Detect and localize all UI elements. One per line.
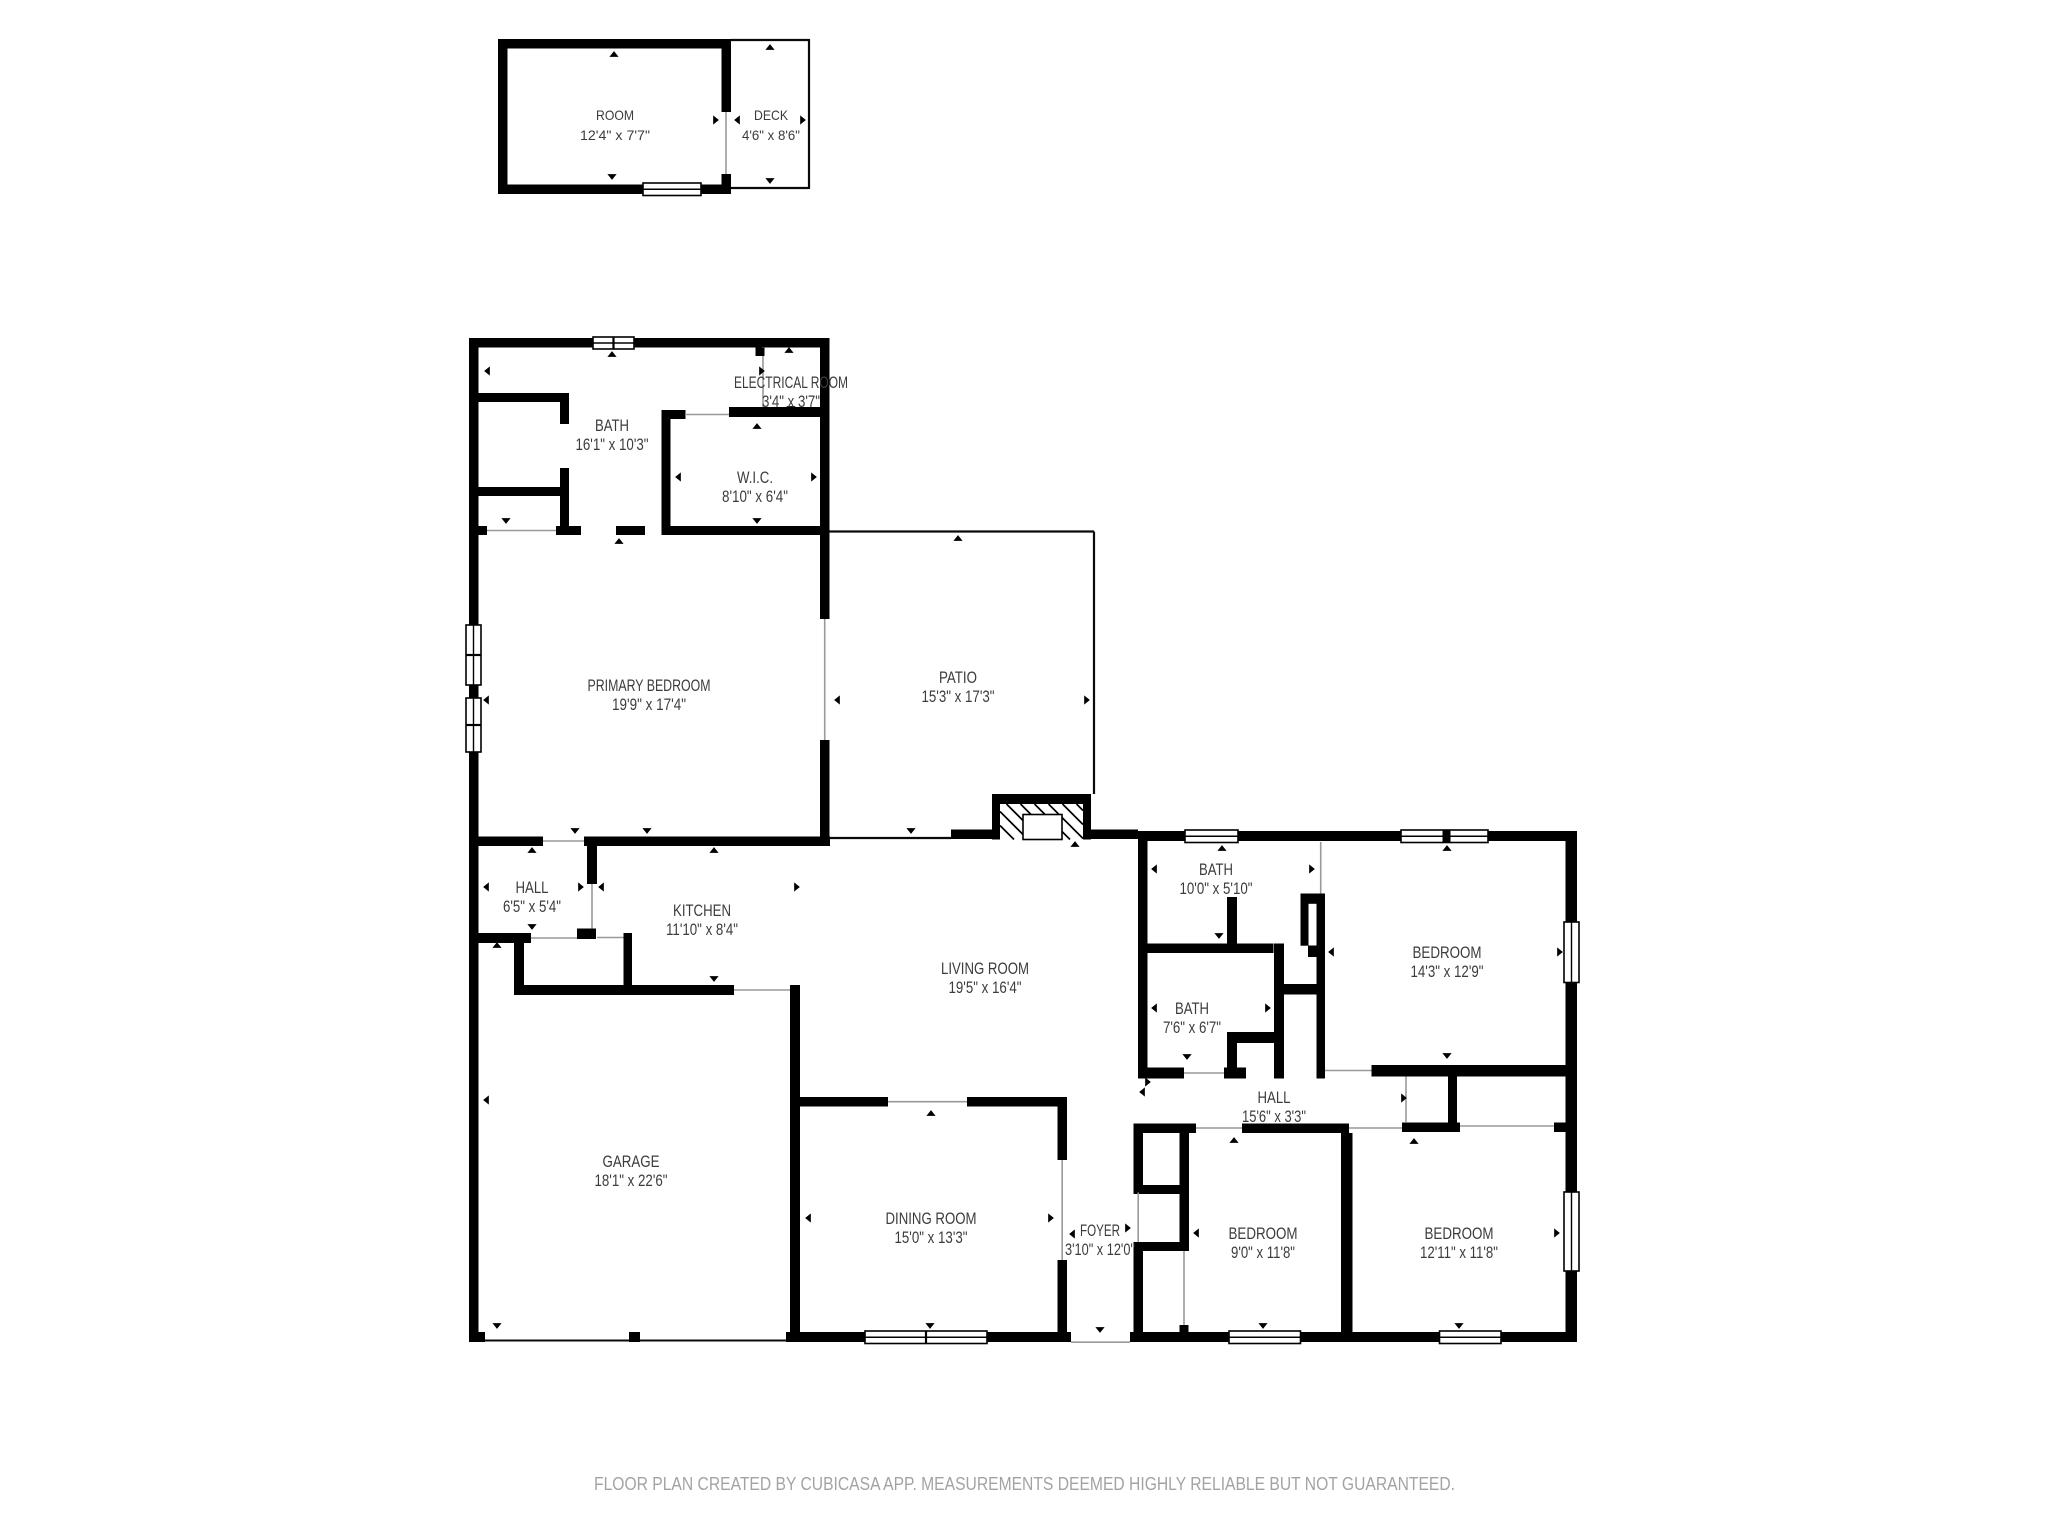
svg-text:BATH: BATH xyxy=(1175,999,1209,1018)
svg-text:DECK: DECK xyxy=(754,107,789,123)
svg-text:15'3" x 17'3": 15'3" x 17'3" xyxy=(922,687,995,706)
svg-text:BATH: BATH xyxy=(595,416,629,435)
svg-text:19'9" x 17'4": 19'9" x 17'4" xyxy=(612,695,686,714)
svg-text:18'1" x 22'6": 18'1" x 22'6" xyxy=(595,1171,668,1190)
svg-text:LIVING ROOM: LIVING ROOM xyxy=(941,959,1029,978)
svg-text:PRIMARY BEDROOM: PRIMARY BEDROOM xyxy=(588,676,711,695)
svg-text:7'6" x 6'7": 7'6" x 6'7" xyxy=(1163,1018,1221,1037)
svg-text:14'3" x 12'9": 14'3" x 12'9" xyxy=(1411,962,1484,981)
svg-text:15'6" x 3'3": 15'6" x 3'3" xyxy=(1242,1107,1306,1126)
svg-text:FOYER: FOYER xyxy=(1080,1221,1120,1240)
svg-text:11'10" x 8'4": 11'10" x 8'4" xyxy=(666,920,738,939)
svg-text:3'10" x 12'0": 3'10" x 12'0" xyxy=(1065,1240,1135,1259)
svg-text:HALL: HALL xyxy=(1258,1088,1291,1107)
svg-text:12'11" x 11'8": 12'11" x 11'8" xyxy=(1420,1243,1498,1262)
svg-text:FLOOR PLAN CREATED BY CUBICASA: FLOOR PLAN CREATED BY CUBICASA APP. MEAS… xyxy=(594,1473,1455,1494)
svg-text:9'0" x 11'8": 9'0" x 11'8" xyxy=(1231,1243,1295,1262)
svg-text:BEDROOM: BEDROOM xyxy=(1413,943,1482,962)
svg-text:BEDROOM: BEDROOM xyxy=(1229,1224,1298,1243)
svg-text:15'0" x 13'3": 15'0" x 13'3" xyxy=(895,1228,968,1247)
svg-text:19'5" x 16'4": 19'5" x 16'4" xyxy=(949,978,1022,997)
svg-text:GARAGE: GARAGE xyxy=(603,1152,660,1171)
svg-text:10'0" x 5'10": 10'0" x 5'10" xyxy=(1180,879,1253,898)
svg-text:BATH: BATH xyxy=(1199,860,1233,879)
svg-text:DINING ROOM: DINING ROOM xyxy=(886,1209,977,1228)
svg-text:W.I.C.: W.I.C. xyxy=(737,468,773,487)
svg-text:BEDROOM: BEDROOM xyxy=(1425,1224,1494,1243)
svg-text:ROOM: ROOM xyxy=(596,107,634,123)
svg-text:8'10" x 6'4": 8'10" x 6'4" xyxy=(722,487,788,506)
svg-text:12'4" x 7'7": 12'4" x 7'7" xyxy=(580,127,650,143)
svg-text:KITCHEN: KITCHEN xyxy=(673,901,731,920)
svg-text:PATIO: PATIO xyxy=(939,668,977,687)
svg-text:ELECTRICAL ROOM: ELECTRICAL ROOM xyxy=(734,373,848,392)
svg-text:16'1" x 10'3": 16'1" x 10'3" xyxy=(576,435,649,454)
svg-text:HALL: HALL xyxy=(516,878,549,897)
svg-text:6'5" x 5'4": 6'5" x 5'4" xyxy=(503,897,561,916)
svg-text:3'4" x 3'7": 3'4" x 3'7" xyxy=(762,392,820,411)
svg-text:4'6" x 8'6": 4'6" x 8'6" xyxy=(742,127,800,143)
